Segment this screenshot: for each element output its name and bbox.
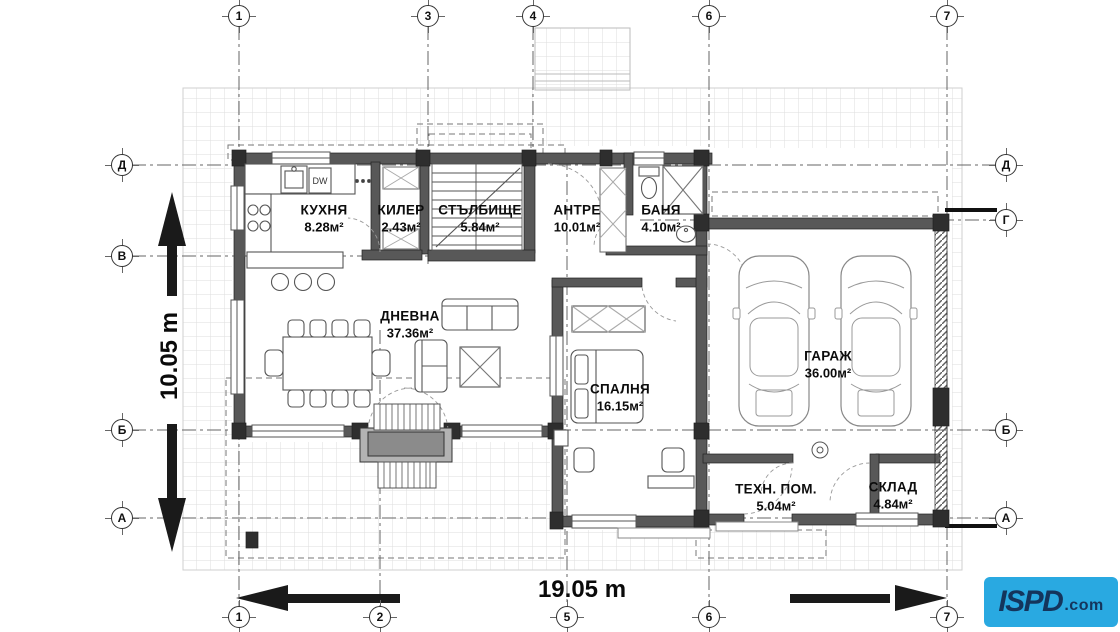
wardrobe — [572, 306, 645, 332]
car-icon — [835, 256, 917, 426]
grid-marker-right-b: Б — [993, 417, 1019, 443]
kitchen-island — [247, 252, 343, 268]
grid-marker-bottom-6: 6 — [696, 604, 722, 630]
grid-marker-left-v: В — [109, 243, 135, 269]
chair-icon — [662, 448, 684, 472]
grid-marker-left-a: А — [109, 505, 135, 531]
grid-marker-top-3: 3 — [415, 3, 441, 29]
vertical-dimension-label: 10.05 m — [156, 312, 184, 400]
chair-icon — [574, 448, 594, 472]
grid-marker-right-a: А — [993, 505, 1019, 531]
room-label-kitchen: КУХНЯ8.28м² — [301, 202, 348, 235]
room-label-staircase: СТЪЛБИЩЕ5.84м² — [438, 202, 521, 235]
grid-marker-right-g: Г — [993, 207, 1019, 233]
logo-tld: .com — [1064, 597, 1103, 615]
room-label-bathroom: БАНЯ4.10м² — [641, 202, 681, 235]
room-label-pantry: КИЛЕР2.43м² — [378, 202, 425, 235]
grid-marker-left-d: Д — [109, 152, 135, 178]
sofa — [442, 299, 518, 330]
coffee-table — [460, 347, 500, 387]
room-label-hall: АНТРЕ10.01м² — [553, 202, 600, 235]
ispd-logo[interactable]: ISPD .com — [984, 577, 1118, 627]
room-label-storage: СКЛАД4.84м² — [869, 479, 918, 512]
room-label-garage: ГАРАЖ36.00м² — [804, 348, 852, 381]
car-icon — [733, 256, 815, 426]
grid-marker-top-4: 4 — [520, 3, 546, 29]
grid-marker-bottom-2: 2 — [367, 604, 393, 630]
sink-icon — [285, 171, 303, 188]
logo-name: ISPD — [998, 585, 1062, 619]
grid-marker-bottom-7: 7 — [934, 604, 960, 630]
dishwasher-label: DW — [313, 176, 328, 186]
floor-plan-page: 1 3 4 6 7 1 2 5 6 7 Д В Б А Д Г Б А КУХН… — [0, 0, 1120, 632]
stool-icon — [318, 274, 335, 291]
stool-icon — [272, 274, 289, 291]
toilet-icon — [642, 178, 657, 199]
grid-marker-bottom-1: 1 — [226, 604, 252, 630]
grid-marker-bottom-5: 5 — [554, 604, 580, 630]
grid-marker-top-7: 7 — [934, 3, 960, 29]
room-label-tech-room: ТЕХН. ПОМ.5.04м² — [735, 481, 817, 514]
grid-marker-left-b: Б — [109, 417, 135, 443]
armchair — [415, 340, 447, 392]
room-label-bedroom: СПАЛНЯ16.15м² — [590, 381, 650, 414]
grid-marker-top-1: 1 — [226, 3, 252, 29]
hall-wardrobe — [600, 168, 626, 252]
grid-marker-right-d: Д — [993, 152, 1019, 178]
grid-marker-top-6: 6 — [696, 3, 722, 29]
horizontal-dimension-label: 19.05 m — [538, 576, 626, 604]
room-label-living-room: ДНЕВНА37.36м² — [380, 308, 439, 341]
stool-icon — [295, 274, 312, 291]
toilet-tank — [639, 167, 659, 176]
